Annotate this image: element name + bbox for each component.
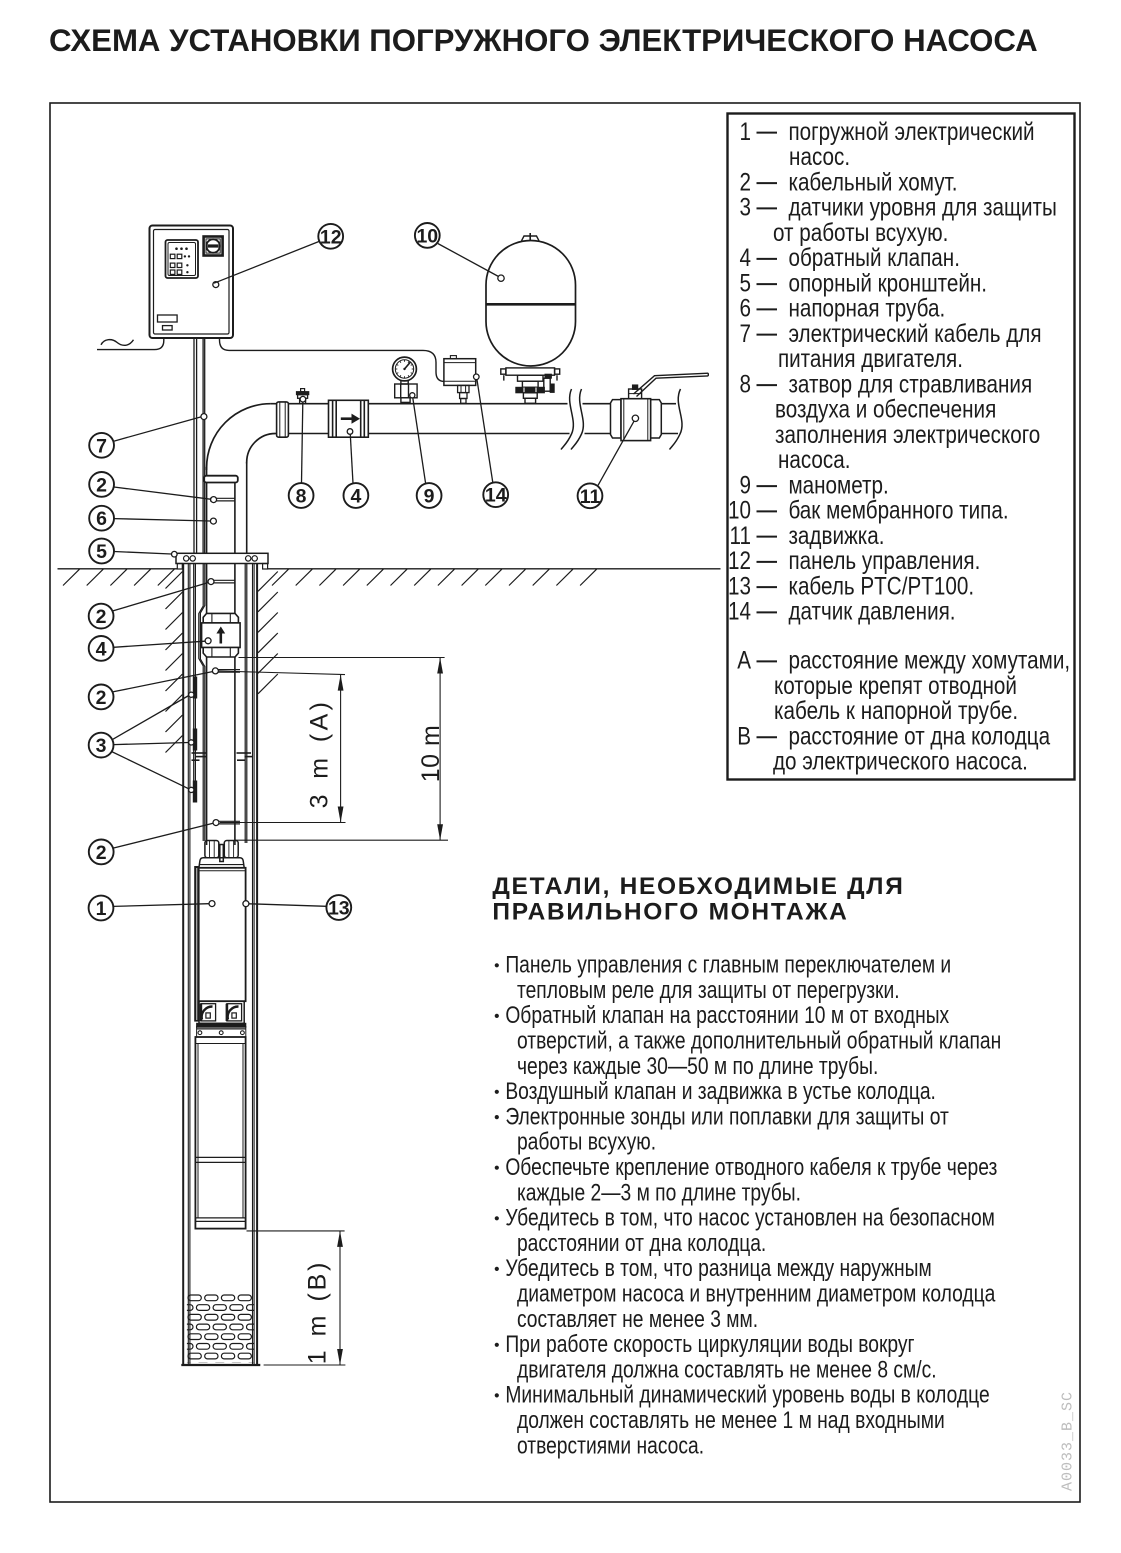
svg-text:10 m: 10 m (417, 725, 445, 783)
svg-text:2: 2 (740, 167, 751, 195)
svg-text:расстояние от дна колодца: расстояние от дна колодца (788, 722, 1050, 750)
svg-text:Панель управления с главным пе: Панель управления с главным переключател… (505, 951, 951, 979)
svg-text:затвор для стравливания: затвор для стравливания (788, 369, 1032, 397)
svg-text:5: 5 (740, 268, 751, 296)
svg-text:каждые 2—3 м по длине трубы.: каждые 2—3 м по длине трубы. (517, 1178, 801, 1206)
svg-text:питания двигателя.: питания двигателя. (778, 344, 963, 372)
svg-text:тепловым реле для защиты от пе: тепловым реле для защиты от перегрузки. (517, 976, 900, 1004)
svg-text:4: 4 (350, 486, 361, 508)
svg-text:9: 9 (424, 486, 435, 508)
svg-text:двигателя должна составлять не: двигателя должна составлять не менее 8 с… (517, 1355, 937, 1383)
svg-text:Обратный клапан на расстоянии: Обратный клапан на расстоянии 10 м от вх… (505, 1001, 949, 1029)
svg-text:При работе скорость циркуляции: При работе скорость циркуляции воды вокр… (505, 1330, 914, 1358)
svg-text:11: 11 (580, 486, 601, 508)
svg-text:B: B (737, 722, 751, 750)
svg-text:бак мембранного типа.: бак мембранного типа. (788, 496, 1008, 524)
svg-text:датчики уровня для защиты: датчики уровня для защиты (788, 193, 1056, 221)
svg-text:кабель к напорной трубе.: кабель к напорной трубе. (774, 696, 1018, 724)
svg-text:до электрического насоса.: до электрического насоса. (773, 747, 1028, 775)
svg-text:1: 1 (740, 117, 751, 145)
svg-text:1: 1 (96, 898, 107, 920)
svg-text:погружной электрический: погружной электрический (788, 117, 1034, 145)
svg-text:ДЕТАЛИ, НЕОБХОДИМЫЕ ДЛЯ: ДЕТАЛИ, НЕОБХОДИМЫЕ ДЛЯ (492, 873, 904, 900)
svg-text:7: 7 (740, 319, 751, 347)
svg-text:3 m (A): 3 m (A) (306, 699, 334, 809)
svg-text:насоса.: насоса. (778, 445, 851, 473)
svg-text:6: 6 (740, 294, 751, 322)
svg-text:датчик давления.: датчик давления. (788, 597, 955, 625)
svg-text:4: 4 (96, 638, 107, 660)
svg-text:13: 13 (328, 898, 350, 920)
svg-text:кабельный хомут.: кабельный хомут. (788, 167, 957, 195)
svg-text:2: 2 (96, 842, 107, 864)
svg-text:обратный клапан.: обратный клапан. (788, 243, 959, 271)
svg-text:панель управления.: панель управления. (788, 546, 980, 574)
svg-text:14: 14 (485, 485, 507, 507)
svg-text:2: 2 (96, 474, 107, 496)
svg-text:9: 9 (740, 470, 751, 498)
svg-text:ПРАВИЛЬНОГО МОНТАЖА: ПРАВИЛЬНОГО МОНТАЖА (492, 899, 848, 926)
svg-text:отверстий, а также дополнитель: отверстий, а также дополнительный обратн… (517, 1026, 1001, 1054)
svg-text:Электронные зонды или поплавки: Электронные зонды или поплавки для защит… (505, 1102, 949, 1130)
svg-text:5: 5 (96, 541, 107, 563)
svg-text:Минимальный динамический урове: Минимальный динамический уровень воды в … (505, 1381, 989, 1409)
svg-text:СХЕМА УСТАНОВКИ ПОГРУЖНОГО ЭЛЕ: СХЕМА УСТАНОВКИ ПОГРУЖНОГО ЭЛЕКТРИЧЕСКОГ… (49, 23, 1038, 58)
svg-text:13: 13 (728, 571, 751, 599)
svg-text:Обеспечьте крепление отводного: Обеспечьте крепление отводного кабеля к … (505, 1153, 997, 1181)
svg-text:8: 8 (296, 486, 307, 508)
svg-text:диаметром насоса и внутренним: диаметром насоса и внутренним диаметром … (517, 1279, 996, 1307)
svg-text:кабель PTC/PT100.: кабель PTC/PT100. (788, 571, 974, 599)
svg-text:10: 10 (728, 496, 751, 524)
svg-text:Убедитесь в том, что насос уст: Убедитесь в том, что насос установлен на… (505, 1204, 995, 1232)
svg-text:8: 8 (740, 369, 751, 397)
svg-text:Убедитесь в том, что разница м: Убедитесь в том, что разница между наруж… (505, 1254, 931, 1282)
svg-text:A: A (737, 646, 751, 674)
svg-text:опорный кронштейн.: опорный кронштейн. (788, 268, 987, 296)
svg-text:4: 4 (740, 243, 752, 271)
svg-text:11: 11 (730, 521, 751, 549)
svg-text:манометр.: манометр. (788, 470, 888, 498)
svg-text:заполнения электрического: заполнения электрического (775, 420, 1040, 448)
svg-text:составляет не менее 3 мм.: составляет не менее 3 мм. (517, 1305, 758, 1333)
svg-text:отверстиями насоса.: отверстиями насоса. (517, 1431, 704, 1459)
svg-text:Воздушный клапан и задвижка в: Воздушный клапан и задвижка в устье коло… (505, 1077, 936, 1105)
svg-text:от работы всухую.: от работы всухую. (773, 218, 948, 246)
svg-text:10: 10 (416, 225, 438, 247)
svg-text:3: 3 (96, 735, 107, 757)
svg-text:расстоянии от дна колодца.: расстоянии от дна колодца. (517, 1229, 766, 1257)
svg-text:7: 7 (96, 435, 107, 457)
svg-text:которые крепят отводной: которые крепят отводной (774, 671, 1017, 699)
svg-text:должен составлять не менее 1 м: должен составлять не менее 1 м над входн… (517, 1406, 945, 1434)
svg-text:2: 2 (96, 606, 107, 628)
svg-text:задвижка.: задвижка. (788, 521, 884, 549)
svg-text:A0033_B_SC: A0033_B_SC (1060, 1391, 1077, 1491)
svg-text:насос.: насос. (789, 142, 850, 170)
svg-text:3: 3 (740, 193, 751, 221)
svg-text:расстояние между хомутами,: расстояние между хомутами, (788, 646, 1070, 674)
svg-text:напорная труба.: напорная труба. (788, 294, 945, 322)
svg-text:14: 14 (728, 597, 751, 625)
svg-text:работы всухую.: работы всухую. (517, 1128, 656, 1156)
svg-text:12: 12 (320, 226, 342, 248)
svg-text:2: 2 (96, 687, 107, 709)
svg-text:воздуха и обеспечения: воздуха и обеспечения (775, 395, 996, 423)
svg-text:12: 12 (728, 546, 751, 574)
svg-text:через каждые 30—50 м по длине: через каждые 30—50 м по длине трубы. (517, 1052, 878, 1080)
svg-text:электрический кабель для: электрический кабель для (788, 319, 1041, 347)
svg-text:6: 6 (96, 508, 107, 530)
svg-text:1 m (B): 1 m (B) (304, 1260, 332, 1365)
